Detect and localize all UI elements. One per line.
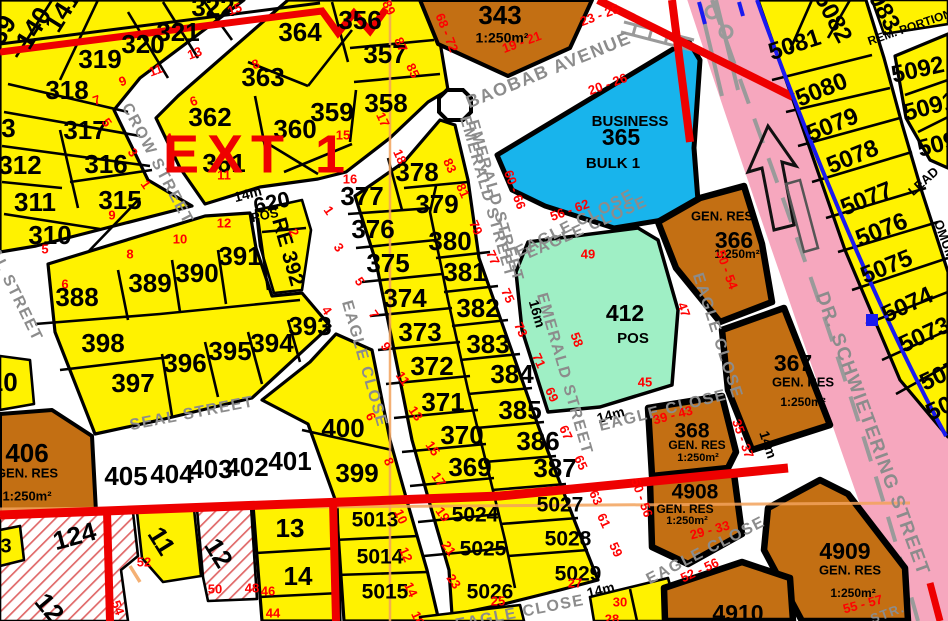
address-number-28: 28 (605, 611, 619, 621)
address-number-9: 9 (378, 339, 394, 354)
address-number-59: 59 (606, 540, 626, 559)
area-label-gen-res: GEN. RES (668, 438, 725, 452)
address-number-30: 30 (613, 594, 627, 609)
plot-label-5015: 5015 (362, 581, 409, 604)
address-number-52: 52 (137, 554, 151, 569)
plot-label-383: 383 (466, 329, 509, 359)
plot-label-385: 385 (498, 395, 541, 425)
area-label-gen-res: GEN. RES (819, 562, 881, 577)
address-number-5: 5 (352, 274, 368, 289)
address-number-9: 9 (108, 207, 115, 222)
address-number-44: 44 (266, 605, 281, 620)
plot-label-398: 398 (81, 328, 124, 358)
plot-label-397: 397 (111, 368, 154, 398)
plot-label-312: 312 (0, 150, 42, 180)
area-label-gen-res: GEN. RES (772, 374, 834, 389)
plot-label-382: 382 (456, 293, 499, 323)
plot-label-313: 313 (0, 113, 16, 143)
plot-label-310: 310 (28, 220, 71, 250)
plot-label-14: 14 (284, 561, 313, 591)
address-number-5: 5 (41, 241, 48, 256)
plot-label-315: 315 (98, 185, 141, 215)
address-number-12: 12 (217, 215, 231, 230)
plot-label-387: 387 (533, 453, 576, 483)
area-label-gen-res: GEN. RES (691, 208, 753, 223)
plot-label-311: 311 (14, 187, 56, 217)
address-number-10: 10 (173, 231, 187, 246)
plot-label-364: 364 (278, 17, 322, 47)
plot-label-374: 374 (383, 283, 427, 313)
plot-label-400: 400 (321, 413, 364, 443)
map-svg: 3133123113103183193173163153203213221391… (0, 0, 948, 621)
plot-label-316: 316 (84, 149, 127, 179)
address-number-48: 48 (245, 580, 259, 595)
plot-label-5014: 5014 (357, 546, 404, 569)
plot-label-389: 389 (128, 268, 171, 298)
plot-label-406: 406 (5, 438, 48, 468)
plot-label-373: 373 (398, 317, 441, 347)
plot-label-394: 394 (250, 328, 294, 358)
plot-label-359: 359 (310, 97, 353, 127)
plot-label-379: 379 (415, 189, 458, 219)
plot-label-381: 381 (443, 257, 486, 287)
plot-label-396: 396 (163, 348, 206, 378)
area-label-pos: POS (617, 330, 649, 347)
plot-label-399: 399 (335, 458, 378, 488)
plot-label-370: 370 (440, 420, 483, 450)
address-number-8: 8 (126, 246, 133, 261)
plot-label-403: 403 (189, 454, 232, 484)
area-label-gen-res: GEN. RES (0, 465, 58, 480)
plot-label-384: 384 (490, 359, 534, 389)
area-label-1-250m-: 1:250m² (780, 395, 825, 409)
plot-label-4908: 4908 (672, 481, 719, 504)
plot-label-318: 318 (45, 75, 88, 105)
plot-label-375: 375 (366, 248, 409, 278)
plot-label-4909: 4909 (819, 538, 870, 564)
plot-label-343: 343 (478, 0, 521, 30)
address-number-50: 50 (208, 581, 222, 596)
address-number-1: 1 (321, 203, 337, 218)
address-number-45: 45 (638, 374, 652, 389)
plot-label-395: 395 (208, 336, 251, 366)
plot-label-404: 404 (150, 459, 194, 489)
area-label-business: BUSINESS (592, 113, 669, 130)
address-number-49: 49 (581, 246, 595, 261)
area-label-1-250m-: 1:250m² (677, 452, 719, 464)
plot-label-410: 410 (0, 367, 18, 397)
plot-label-371: 371 (421, 387, 464, 417)
plot-label-5024: 5024 (452, 504, 499, 527)
address-number-25: 25 (491, 593, 505, 608)
plot-label-5025: 5025 (460, 538, 507, 561)
plot-label-5028: 5028 (545, 528, 592, 551)
plot-label-369: 369 (448, 452, 491, 482)
address-number-27: 27 (568, 575, 582, 590)
plot-label-367: 367 (774, 350, 812, 376)
plot-label-363: 363 (241, 62, 284, 92)
plot-label-390: 390 (175, 258, 218, 288)
plot-label-317: 317 (63, 115, 106, 145)
address-number-7: 7 (366, 307, 382, 322)
plot-label-412: 412 (606, 300, 644, 326)
plot-label-376: 376 (351, 214, 394, 244)
plot-label-386: 386 (516, 426, 559, 456)
cadastral-map-canvas: 3133123113103183193173163153203213221391… (0, 0, 948, 621)
address-number-6: 6 (61, 276, 68, 291)
address-number-46: 46 (261, 583, 275, 598)
address-number-61: 61 (594, 511, 614, 530)
address-number-75: 75 (498, 286, 518, 305)
plot-label-3: 3 (0, 535, 11, 557)
area-label-1-250m-: 1:250m² (2, 488, 52, 503)
plot-label-5027: 5027 (537, 494, 584, 517)
plot-label-405: 405 (104, 461, 147, 491)
plot-label-4910: 4910 (712, 600, 763, 621)
area-label-bulk-1: BULK 1 (586, 155, 640, 172)
plot-label-391: 391 (218, 241, 261, 271)
plot-label-356: 356 (338, 5, 381, 35)
ext-title-ext-1: EXT 1 (163, 124, 353, 184)
plot-label-372: 372 (410, 351, 453, 381)
plot-label-319: 319 (78, 44, 121, 74)
plot-label-13: 13 (276, 513, 305, 543)
address-number-3: 3 (331, 240, 347, 255)
plot-label-380: 380 (428, 226, 471, 256)
plot-label-401: 401 (268, 446, 311, 476)
